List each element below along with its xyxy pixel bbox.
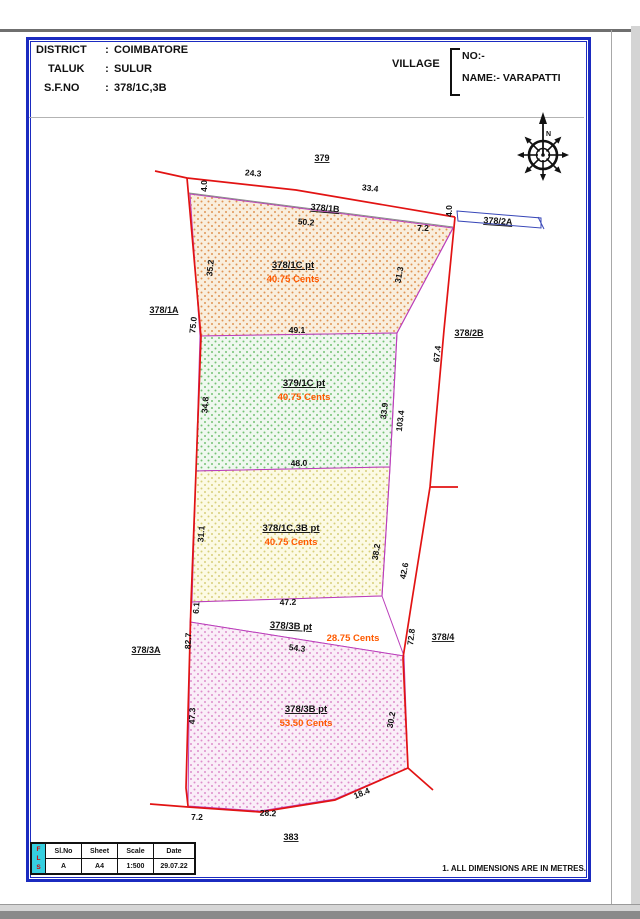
dim-p2-east: 33.9 (378, 402, 390, 420)
dim-south-28-2: 28.2 (260, 808, 277, 819)
dim-top-tick-right: 4.0 (444, 205, 454, 217)
dim-top-seg-b: 33.4 (361, 182, 379, 194)
dim-east-total: 103.4 (394, 409, 407, 432)
dim-p1-west: 35.2 (204, 259, 216, 277)
survey-sketch: N 379 378/1B 378/2A 378/1A 378/2B 378/3A… (0, 0, 640, 919)
parcel-5-area: 53.50 Cents (280, 718, 333, 729)
fls-logo-s: S (36, 863, 40, 872)
parcel-4-id: 378/3B pt (270, 620, 314, 633)
sheet-value: A4 (82, 859, 118, 873)
neighbor-north-label: 379 (314, 153, 329, 163)
strip-2a-label: 378/2A (483, 215, 513, 227)
compass-north-label: N (546, 131, 551, 138)
dim-strip-len: 50.2 (297, 216, 315, 227)
title-table-col-scale: Scale 1:500 (118, 844, 154, 873)
parcel-5-id: 378/3B pt (285, 704, 328, 715)
dim-p2-west: 34.8 (199, 396, 210, 413)
title-table-col-sheet: Sheet A4 (82, 844, 118, 873)
slno-value: A (46, 859, 82, 873)
parcel-1-id: 378/1C pt (272, 260, 315, 271)
neighbor-east-bottom-label: 378/4 (432, 632, 455, 642)
scale-value: 1:500 (118, 859, 154, 873)
scale-header: Scale (118, 844, 154, 859)
parcel-378-1c (190, 194, 453, 336)
dim-top-seg-a: 24.3 (245, 167, 262, 178)
dim-east-72-8: 72.8 (405, 628, 417, 646)
compass-rose: N (517, 112, 569, 181)
dim-p4-west: 47.3 (187, 707, 198, 724)
fls-logo-l: L (37, 854, 41, 863)
title-table: F L S Sl.No A Sheet A4 Scale 1:500 Date … (30, 842, 196, 875)
parcel-3-area: 40.75 Cents (265, 537, 318, 548)
parcel-3-id: 378/1C,3B pt (262, 523, 320, 534)
dim-sliver-west: 6.1 (191, 601, 202, 614)
north-arrow-head (539, 112, 547, 124)
dim-west-82-7: 82.7 (183, 632, 194, 649)
title-table-col-date: Date 29.07.22 (154, 844, 194, 873)
dimensions-note: 1. ALL DIMENSIONS ARE IN METRES. (408, 864, 586, 873)
neighbor-east-top-label: 378/2B (454, 328, 484, 338)
date-value: 29.07.22 (154, 859, 194, 873)
dim-sliver-south: 54.3 (288, 642, 306, 654)
dim-p3-south: 47.2 (280, 597, 297, 608)
parcel-4-area: 28.75 Cents (327, 633, 380, 644)
dim-east-7-2: 7.2 (417, 223, 429, 233)
title-table-col-slno: Sl.No A (46, 844, 82, 873)
parcel-378-1c-3b (192, 467, 390, 602)
dim-south-7-2: 7.2 (191, 812, 203, 822)
parcel-2-area: 40.75 Cents (278, 392, 331, 403)
dim-p1-south: 49.1 (289, 325, 306, 335)
dim-west-total: 75.0 (187, 316, 199, 334)
neighbor-west-top-label: 378/1A (149, 305, 179, 315)
dim-east-67-4: 67.4 (431, 345, 443, 363)
dim-p2-south: 48.0 (291, 458, 308, 469)
scanned-survey-document: { "header": { "rows": [ {"label": "DISTR… (0, 0, 640, 919)
neighbor-south-label: 383 (283, 832, 298, 842)
parcel-1-area: 40.75 Cents (267, 274, 320, 285)
dim-p3-west: 31.1 (195, 525, 206, 542)
parcel-2-id: 379/1C pt (283, 378, 326, 389)
dim-top-tick-left: 4.0 (199, 180, 209, 192)
dim-east-42-6: 42.6 (398, 561, 411, 579)
compass-hub (541, 153, 545, 157)
slno-header: Sl.No (46, 844, 82, 859)
sheet-header: Sheet (82, 844, 118, 859)
date-header: Date (154, 844, 194, 859)
fls-logo: F L S (32, 844, 46, 873)
neighbor-west-bottom-label: 378/3A (131, 645, 161, 655)
fls-logo-f: F (37, 845, 41, 854)
